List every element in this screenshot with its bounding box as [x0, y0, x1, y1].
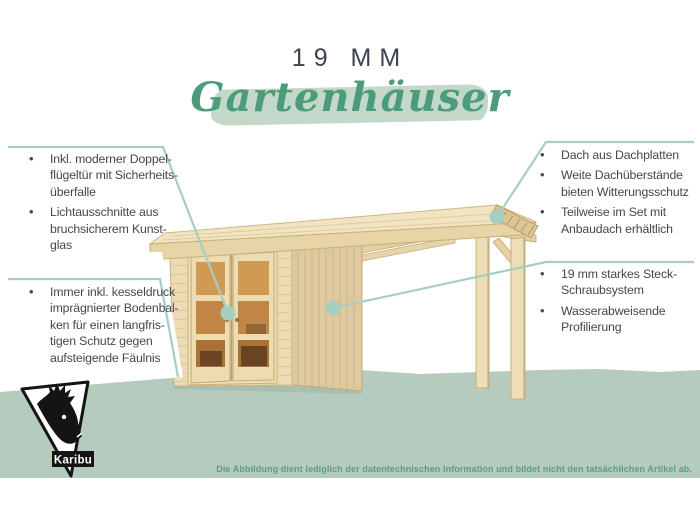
- feature-list-floor: • Immer inkl. kesseldruck imprägnierter …: [29, 284, 178, 370]
- callout-dot-roof: [490, 210, 505, 225]
- list-item: • 19 mm starkes Steck- Schraubsystem: [540, 266, 677, 299]
- bullet-dot: •: [540, 266, 548, 299]
- product-infographic: 19 MM Gartenhäuser: [0, 0, 700, 525]
- list-item: • Lichtausschnitte aus bruchsicherem Kun…: [29, 204, 178, 253]
- bullet-dot: •: [540, 167, 548, 200]
- logo-wordmark: Karibu: [54, 455, 92, 467]
- bullet-dot: •: [540, 204, 548, 237]
- bullet-dot: •: [29, 204, 37, 253]
- feature-text: Weite Dachüberstände bieten Witterungssc…: [561, 167, 689, 200]
- feature-list-door: • Inkl. moderner Doppel- flügeltür mit S…: [29, 151, 178, 257]
- feature-text: 19 mm starkes Steck- Schraubsystem: [561, 266, 677, 299]
- bullet-dot: •: [540, 147, 548, 163]
- garden-house: [150, 205, 538, 399]
- callout-dot-door: [221, 306, 236, 321]
- feature-text: Immer inkl. kesseldruck imprägnierter Bo…: [50, 284, 178, 366]
- feature-list-roof: • Dach aus Dachplatten • Weite Dachübers…: [540, 147, 689, 241]
- feature-text: Teilweise im Set mit Anbaudach erhältlic…: [561, 204, 673, 237]
- feature-text: Inkl. moderner Doppel- flügeltür mit Sic…: [50, 151, 178, 200]
- bullet-dot: •: [29, 151, 37, 200]
- feature-text: Dach aus Dachplatten: [561, 147, 679, 163]
- list-item: • Wasserabweisende Profilierung: [540, 303, 677, 336]
- list-item: • Weite Dachüberstände bieten Witterungs…: [540, 167, 689, 200]
- garden-house-illustration: Karibu: [0, 0, 700, 525]
- bullet-dot: •: [540, 303, 548, 336]
- list-item: • Dach aus Dachplatten: [540, 147, 689, 163]
- feature-text: Wasserabweisende Profilierung: [561, 303, 665, 336]
- list-item: • Immer inkl. kesseldruck imprägnierter …: [29, 284, 178, 366]
- list-item: • Inkl. moderner Doppel- flügeltür mit S…: [29, 151, 178, 200]
- disclaimer-text: Die Abbildung dient lediglich der datent…: [216, 464, 692, 474]
- callout-dot-wall: [326, 301, 341, 316]
- feature-list-walls: • 19 mm starkes Steck- Schraubsystem • W…: [540, 266, 677, 340]
- list-item: • Teilweise im Set mit Anbaudach erhältl…: [540, 204, 689, 237]
- feature-text: Lichtausschnitte aus bruchsicherem Kunst…: [50, 204, 167, 253]
- bullet-dot: •: [29, 284, 37, 366]
